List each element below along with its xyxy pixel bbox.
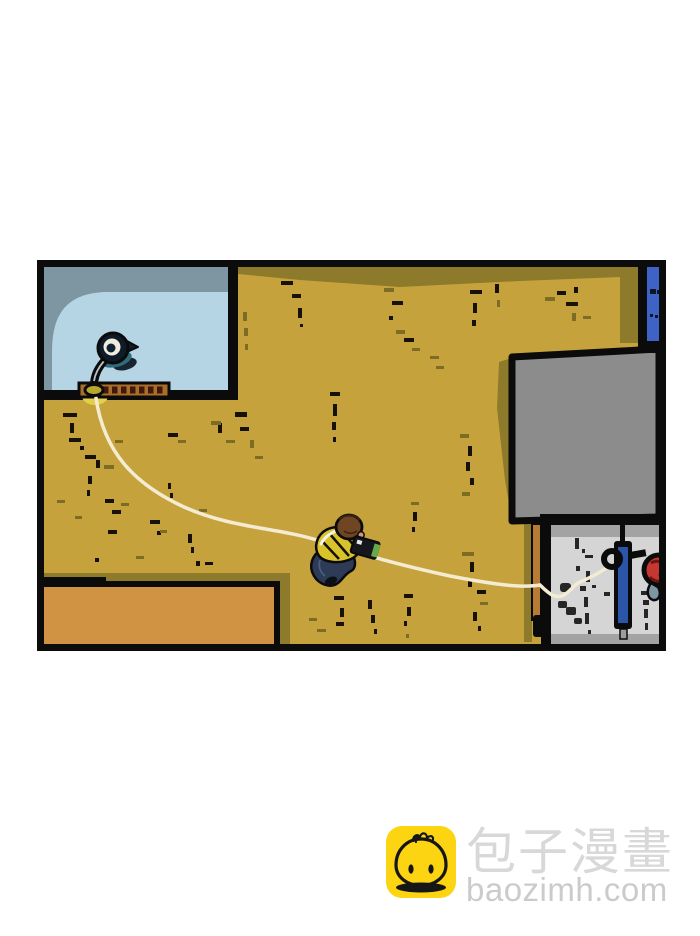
rug-area [44, 267, 238, 400]
comic-panel [0, 0, 700, 936]
brand-domain: baozimh.com [466, 873, 674, 907]
baozi-bun-icon [386, 826, 456, 898]
comic-image[interactable] [0, 0, 700, 936]
watermark: 包子漫畫 baozimh.com [386, 826, 674, 907]
watermark-text: 包子漫畫 baozimh.com [466, 826, 674, 907]
desk-area [532, 514, 659, 645]
comic-page: { "comic_panel": { "colors": { "floor": … [0, 0, 700, 936]
blue-door [638, 267, 660, 353]
tv-screen [512, 349, 659, 521]
